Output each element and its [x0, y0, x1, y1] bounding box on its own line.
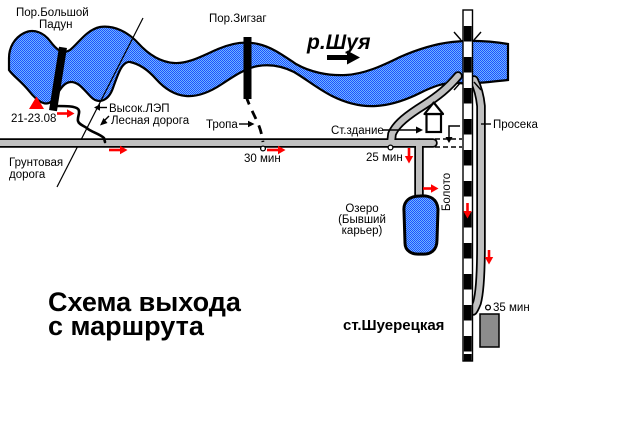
rapids-padun-label-line2: Падун: [39, 19, 72, 31]
map-title-line2: с маршрута: [48, 311, 205, 341]
route-arrow-down-25min: [405, 148, 413, 164]
power-line-label: Высок.ЛЭП: [109, 103, 170, 115]
forest-road-pointer-icon: [100, 116, 109, 126]
trail-pointer-icon: [239, 121, 255, 127]
trail-label: Тропа: [206, 119, 238, 131]
camp-dates-label: 21-23.08: [11, 113, 56, 125]
lake-label-line3: карьер): [342, 225, 383, 237]
road-outlines: [0, 76, 481, 311]
map-canvas: Пор.Большой Падун Пор.Зигзаг р.Шуя 21-23…: [0, 0, 640, 442]
route-exit-map: Пор.Большой Падун Пор.Зигзаг р.Шуя 21-23…: [0, 0, 640, 442]
lake: [404, 196, 438, 254]
forest-road-label: Лесная дорога: [111, 115, 190, 127]
station-building-label: Ст.здание: [331, 125, 384, 137]
waypoint-30min: [261, 146, 266, 151]
time-25min-label: 25 мин: [366, 152, 403, 164]
dirt-road-label-line1: Грунтовая: [9, 157, 63, 169]
route-arrow-right-camp: [57, 109, 75, 117]
waypoint-25min: [388, 145, 393, 150]
cutting-label: Просека: [493, 119, 538, 131]
waypoint-35min: [486, 305, 491, 310]
rapids-bar-zigzag: [244, 37, 252, 99]
route-arrow-down-cutting: [485, 250, 493, 265]
dirt-road-label-line2: дорога: [9, 169, 46, 181]
forest-road-path: [56, 106, 105, 142]
river-name-label: р.Шуя: [306, 31, 371, 54]
station-house: [480, 314, 499, 347]
station-name-label: ст.Шуерецкая: [343, 317, 444, 334]
route-arrow-right-lake: [423, 184, 439, 192]
time-35min-label: 35 мин: [493, 302, 530, 314]
trail-path: [246, 96, 263, 142]
turn-down-arrow-icon: [446, 126, 461, 143]
swamp-label: Болото: [441, 173, 453, 211]
rapids-zigzag-label: Пор.Зигзаг: [209, 13, 267, 25]
rapids-padun-label-line1: Пор.Большой: [16, 7, 89, 19]
time-30min-label: 30 мин: [244, 153, 281, 165]
